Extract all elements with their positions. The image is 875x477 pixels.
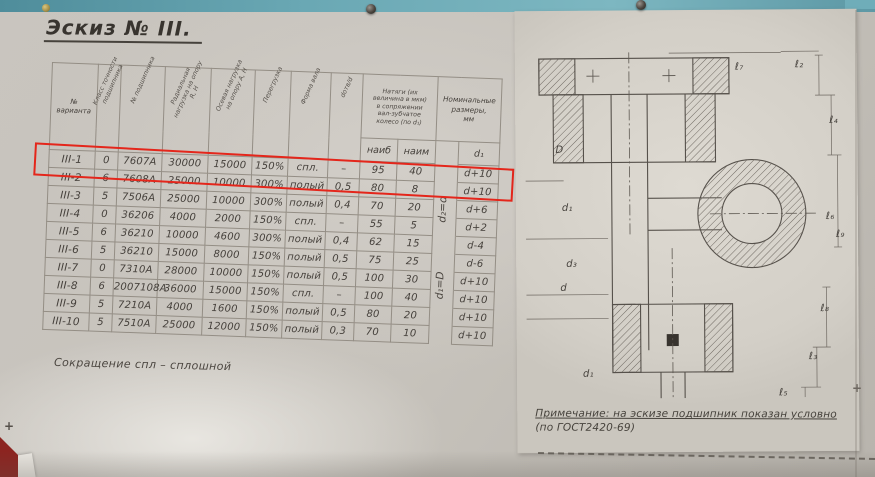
cell-bearing-no: 7210А [112, 296, 157, 316]
cell-overload: 300% [249, 229, 286, 248]
col-header-bearing-no: № подшипника [118, 65, 165, 154]
cell-axial-load: 8000 [204, 245, 249, 265]
cell-shaft-form: полый [282, 302, 323, 321]
cell-axial-load: 10000 [206, 191, 251, 211]
cell-variant: III-8 [44, 275, 91, 295]
cell-bearing-no: 7506А [116, 188, 161, 208]
cell-axial-load: 1600 [202, 299, 247, 319]
col-header-d1: d₁ [458, 141, 500, 165]
cell-bore-ratio: 0,4 [326, 196, 359, 215]
cell-naim: 40 [392, 288, 431, 307]
cell-naim: 15 [394, 234, 433, 253]
cell-naib: 80 [354, 305, 392, 324]
cell-naib: 100 [355, 269, 393, 288]
cell-variant: III-6 [45, 239, 92, 259]
cell-naim: 20 [395, 198, 434, 217]
dim-label-l8: ℓ₈ [821, 303, 830, 314]
cell-bore-ratio: 0,5 [323, 268, 356, 287]
cell-radial-load: 25000 [160, 190, 207, 210]
cell-overload: 150% [246, 301, 283, 320]
cell-bore-ratio: 0,5 [322, 304, 355, 323]
screw-icon [636, 0, 646, 10]
cell-naib: 55 [357, 215, 395, 234]
cell-naim: 5 [394, 216, 433, 235]
cell-overload: 150% [247, 283, 284, 302]
col-header-overload: Перегрузка [252, 70, 291, 158]
cell-axial-load: 12000 [202, 317, 247, 337]
cell-d1: d+6 [456, 200, 498, 219]
cell-naib: 75 [356, 251, 394, 270]
cell-formula-spacer [431, 254, 455, 273]
bearing-data-table: № варианта Класс точности подшипника № п… [42, 62, 503, 346]
photo-frame: Эскиз № III. № варианта Класс точности п… [0, 0, 875, 477]
cell-bearing-no: 2007108А [113, 278, 158, 298]
cell-naim: 10 [390, 324, 429, 343]
cell-d1: d+2 [455, 218, 497, 237]
cell-radial-load: 4000 [160, 208, 207, 228]
dim-label-l2: ℓ₂ [795, 59, 804, 70]
bearing-drawing [519, 47, 851, 399]
cell-formula-spacer [432, 218, 456, 237]
dim-label-d1-bottom: d₁ [583, 369, 594, 380]
cell-overload: 150% [248, 247, 285, 266]
cell-variant: III-4 [47, 203, 94, 223]
cell-shaft-form: полый [286, 194, 327, 213]
board-edge-line [855, 10, 857, 477]
dim-label-l6: ℓ₆ [826, 211, 835, 222]
cell-axial-load: 15000 [203, 281, 248, 301]
cell-variant: III-3 [47, 185, 94, 205]
dim-label-l7: ℓ₇ [735, 62, 744, 73]
cell-shaft-form: спл. [285, 212, 326, 231]
table-wrap: № варианта Класс точности подшипника № п… [42, 62, 503, 346]
cell-bearing-no: 7310А [114, 260, 159, 280]
cell-bearing-no: 36206 [116, 206, 161, 226]
table-header-row: № варианта Класс точности подшипника № п… [50, 63, 502, 143]
cell-accuracy-class: 5 [91, 241, 115, 260]
dim-label-l5: ℓ₅ [779, 387, 788, 398]
cell-bore-ratio: – [323, 286, 356, 305]
cell-accuracy-class: 0 [91, 259, 115, 278]
cell-d1: d+10 [453, 272, 495, 291]
dim-label-l4: ℓ₄ [829, 115, 838, 126]
cell-d1: d+10 [451, 326, 493, 345]
corner-cross-mark: + [4, 419, 14, 433]
cell-formula-spacer [429, 308, 453, 327]
cell-overload: 150% [248, 265, 285, 284]
cell-d1: d-4 [455, 236, 497, 255]
rotated-label: Форма вала [294, 56, 327, 118]
cell-d1: d-6 [454, 254, 496, 273]
cell-accuracy-class: 0 [93, 205, 117, 224]
cell-variant: III-10 [43, 311, 90, 331]
dim-label-d1: d₁ [562, 203, 573, 214]
cell-radial-load: 25000 [156, 315, 203, 335]
cell-bore-ratio: 0,4 [325, 232, 358, 251]
drawing-note-line2: (по ГОСТ2420-69) [535, 422, 635, 434]
cell-radial-load: 10000 [159, 226, 206, 246]
col-header-shaft-form: Форма вала [288, 71, 331, 159]
cell-accuracy-class: 5 [89, 295, 113, 314]
cell-shaft-form: полый [282, 320, 323, 339]
pin-icon [42, 4, 50, 12]
cell-accuracy-class: 5 [93, 187, 117, 206]
cell-naib: 62 [357, 233, 395, 252]
cell-overload: 300% [250, 193, 287, 212]
cell-accuracy-class: 6 [90, 277, 114, 296]
drawing-note-line1: Примечание: на эскизе подшипник показан … [535, 407, 837, 420]
cell-formula-spacer [430, 272, 454, 291]
cell-bearing-no: 36210 [115, 224, 160, 244]
cell-overload: 150% [246, 319, 283, 338]
rotated-label: Радиальная нагрузка на опору R, Н [164, 55, 211, 123]
wall-background-corner [845, 0, 875, 9]
col-header-bore-ratio: dотв/d [328, 73, 363, 161]
board-shadow [0, 451, 875, 477]
cell-formula-spacer [428, 325, 452, 344]
cell-naim: 20 [391, 306, 430, 325]
cell-accuracy-class: 6 [92, 223, 116, 242]
cell-shaft-form: полый [284, 266, 325, 285]
cell-naib: 70 [358, 197, 396, 216]
cell-formula-spacer [430, 290, 454, 309]
dim-label-l3: ℓ₃ [809, 351, 818, 362]
cell-bearing-no: 36210 [114, 242, 159, 262]
dim-label-d3: d₃ [566, 259, 577, 270]
rotated-label: Перегрузка [256, 54, 289, 116]
cell-bore-ratio: 0,3 [322, 322, 355, 341]
sketch-sheet: Эскиз № III. № варианта Класс точности п… [30, 14, 530, 444]
cell-axial-load: 4600 [205, 227, 250, 247]
cell-variant: III-9 [43, 293, 90, 313]
cell-variant: III-7 [45, 257, 92, 277]
abbreviation-footnote: Сокращение спл – сплошной [54, 356, 232, 373]
cell-shaft-form: полый [285, 230, 326, 249]
cell-axial-load: 2000 [206, 209, 251, 229]
cell-shaft-form: спл. [283, 284, 324, 303]
col-header-accuracy-class: Класс точности подшипника [95, 64, 121, 152]
cell-bore-ratio: – [325, 214, 358, 233]
col-header-nominal-group: Номинальные размеры, мм [436, 77, 502, 143]
cell-naib: 70 [353, 323, 391, 342]
cell-d1: d+10 [453, 290, 495, 309]
cell-radial-load: 15000 [158, 244, 205, 264]
col-header-formula-spacer [435, 141, 459, 165]
cell-formula-spacer [433, 200, 457, 219]
cell-bearing-no: 7510А [112, 314, 157, 334]
cell-accuracy-class: 5 [89, 313, 113, 332]
screw-icon [366, 4, 376, 14]
rotated-label: № подшипника [126, 49, 159, 111]
cell-radial-load: 4000 [156, 298, 203, 318]
cell-variant: III-5 [46, 221, 93, 241]
cell-naim: 25 [393, 252, 432, 271]
dim-label-l9: ℓ₉ [836, 229, 845, 240]
col-header-interference-group: Натяги (их величина в мкм) в сопряжении … [361, 74, 438, 141]
cell-overload: 150% [250, 211, 287, 230]
dim-label-D: D [555, 145, 563, 156]
col-header-axial-load: Осевая нагрузка на опору А, Н [208, 68, 255, 157]
cell-formula-spacer [432, 236, 456, 255]
cell-radial-load: 28000 [158, 262, 205, 282]
cell-axial-load: 10000 [204, 263, 249, 283]
cell-naim: 30 [392, 270, 431, 289]
col-header-radial-load: Радиальная нагрузка на опору R, Н [162, 67, 211, 156]
col-header-naim: наим [397, 139, 436, 163]
center-marks [586, 69, 675, 83]
drawing-sheet: D d₁ d₃ d d₁ ℓ₇ ℓ₂ ℓ₄ ℓ₆ ℓ₉ ℓ₈ ℓ₃ ℓ₅ При… [514, 9, 859, 453]
cell-radial-load: 36000 [157, 280, 204, 300]
page-title: Эскиз № III. [44, 15, 202, 44]
cell-bore-ratio: 0,5 [324, 250, 357, 269]
col-header-naib: наиб [360, 138, 398, 162]
corner-cross-mark: + [852, 381, 862, 395]
rotated-label: Осевая нагрузка на опору А, Н [213, 55, 253, 120]
dim-label-d: d [560, 283, 567, 294]
cell-d1: d+10 [452, 308, 494, 327]
rotated-label: dотв/d [330, 57, 363, 119]
cell-naib: 100 [355, 287, 393, 306]
cell-shaft-form: полый [284, 248, 325, 267]
